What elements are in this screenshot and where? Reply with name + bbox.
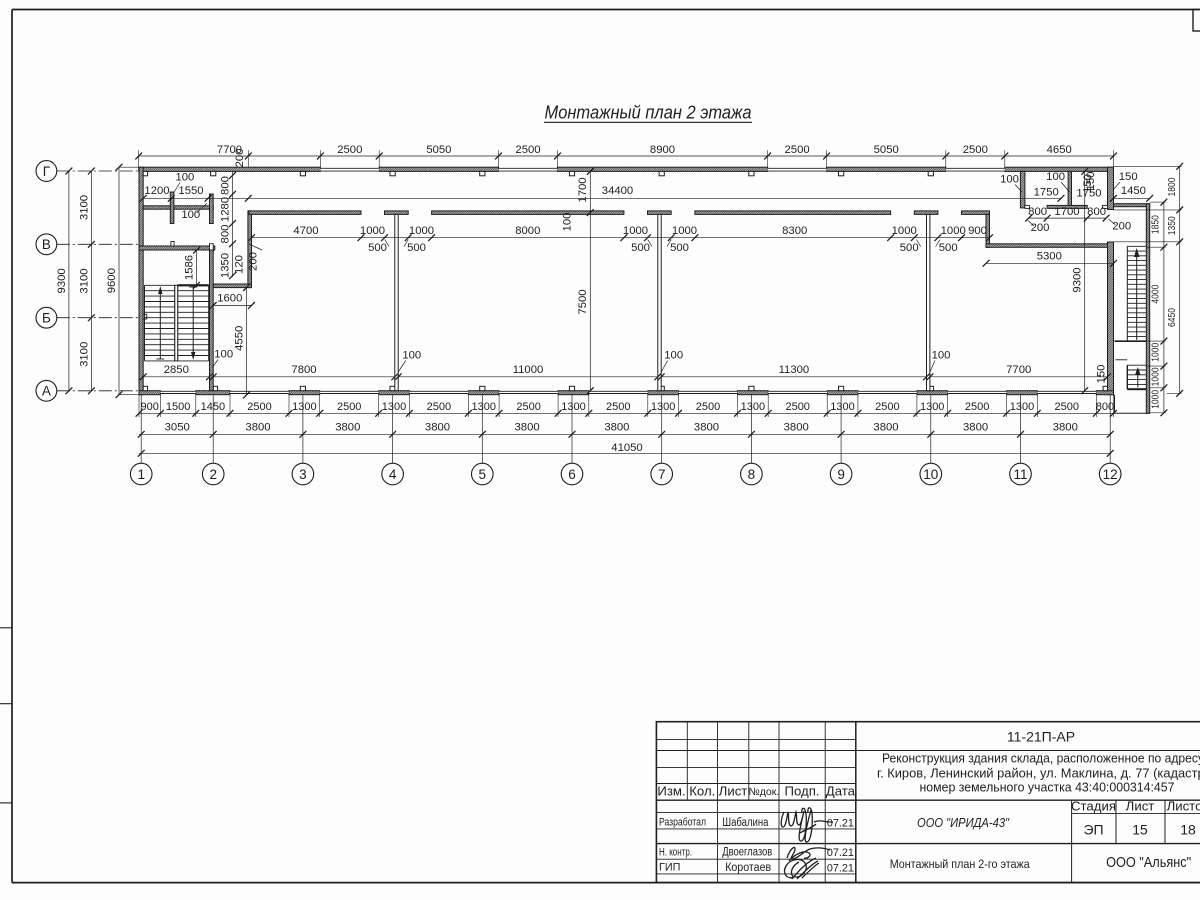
svg-text:3100: 3100 [78, 195, 90, 220]
svg-text:5300: 5300 [1037, 250, 1062, 262]
svg-text:ООО "Альянс": ООО "Альянс" [1106, 855, 1191, 871]
svg-text:3: 3 [299, 467, 307, 482]
svg-text:4000: 4000 [1150, 284, 1161, 303]
svg-text:7800: 7800 [291, 364, 316, 376]
svg-text:Б: Б [42, 311, 51, 326]
svg-text:Лист: Лист [1126, 798, 1155, 813]
svg-text:1300: 1300 [382, 401, 406, 413]
svg-text:200: 200 [1031, 222, 1050, 234]
svg-text:1000: 1000 [1150, 343, 1161, 362]
svg-text:5050: 5050 [874, 144, 899, 156]
svg-text:500: 500 [407, 242, 426, 254]
svg-text:800: 800 [220, 176, 232, 195]
svg-text:1300: 1300 [651, 401, 675, 413]
svg-text:8: 8 [748, 467, 756, 482]
svg-text:1300: 1300 [1010, 401, 1034, 413]
svg-text:8000: 8000 [515, 225, 540, 237]
svg-text:1000: 1000 [1150, 390, 1161, 409]
svg-text:1300: 1300 [741, 401, 765, 413]
svg-text:ЭП: ЭП [1083, 822, 1103, 838]
svg-text:Монтажный план 2 этажа: Монтажный план 2 этажа [545, 103, 752, 123]
svg-text:500: 500 [368, 242, 387, 254]
svg-text:10: 10 [923, 467, 938, 482]
svg-text:Г: Г [43, 164, 51, 179]
svg-text:3100: 3100 [78, 342, 90, 367]
svg-text:8900: 8900 [650, 144, 675, 156]
svg-text:1550: 1550 [178, 185, 203, 197]
svg-text:1200: 1200 [144, 185, 169, 197]
svg-text:34400: 34400 [602, 185, 633, 197]
svg-text:4650: 4650 [1047, 144, 1072, 156]
svg-text:15: 15 [1132, 822, 1148, 838]
svg-text:500: 500 [939, 242, 958, 254]
svg-text:500: 500 [670, 242, 689, 254]
svg-text:9300: 9300 [56, 268, 68, 293]
svg-text:1000: 1000 [360, 225, 385, 237]
svg-text:2500: 2500 [965, 401, 989, 413]
svg-text:150: 150 [1119, 171, 1138, 183]
svg-text:8300: 8300 [782, 225, 807, 237]
svg-text:800: 800 [1096, 401, 1114, 413]
svg-text:900: 900 [968, 225, 987, 237]
svg-text:07.21: 07.21 [827, 847, 854, 859]
svg-text:3800: 3800 [245, 421, 270, 433]
svg-text:1300: 1300 [561, 401, 585, 413]
svg-text:800: 800 [220, 225, 232, 244]
svg-text:100: 100 [562, 213, 574, 232]
svg-text:4550: 4550 [233, 326, 245, 351]
svg-text:4: 4 [389, 467, 397, 482]
svg-text:1000: 1000 [941, 225, 966, 237]
svg-text:9: 9 [837, 467, 845, 482]
svg-text:Дата: Дата [826, 784, 856, 799]
svg-text:ООО "ИРИДА-43": ООО "ИРИДА-43" [917, 815, 1010, 830]
svg-text:2850: 2850 [164, 364, 189, 376]
svg-text:1850: 1850 [1150, 215, 1161, 234]
svg-text:1: 1 [137, 467, 145, 482]
svg-text:1300: 1300 [830, 401, 854, 413]
svg-text:200: 200 [1112, 220, 1131, 232]
svg-text:3050: 3050 [165, 421, 190, 433]
svg-text:500: 500 [900, 242, 919, 254]
svg-text:3800: 3800 [694, 421, 719, 433]
svg-text:200: 200 [234, 149, 246, 168]
svg-text:18: 18 [1180, 822, 1196, 838]
svg-text:2500: 2500 [606, 401, 630, 413]
svg-text:3800: 3800 [1053, 421, 1078, 433]
svg-text:2500: 2500 [785, 401, 809, 413]
svg-text:11300: 11300 [779, 364, 810, 376]
svg-text:Реконструкция здания склада, р: Реконструкция здания склада, расположенн… [882, 751, 1200, 766]
svg-text:100: 100 [932, 350, 951, 362]
svg-text:9300: 9300 [1072, 267, 1084, 292]
svg-text:2500: 2500 [247, 401, 271, 413]
svg-text:500: 500 [631, 242, 650, 254]
svg-text:800: 800 [1028, 206, 1047, 218]
svg-text:Н. контр.: Н. контр. [659, 846, 692, 858]
svg-text:1750: 1750 [1034, 187, 1059, 199]
svg-text:5: 5 [479, 467, 487, 482]
svg-text:12: 12 [1103, 467, 1118, 482]
svg-text:9600: 9600 [106, 268, 118, 293]
svg-text:2500: 2500 [427, 401, 451, 413]
svg-text:3800: 3800 [335, 421, 360, 433]
svg-text:1450: 1450 [1121, 185, 1146, 197]
svg-text:2500: 2500 [337, 144, 362, 156]
svg-text:100: 100 [1000, 174, 1019, 186]
svg-text:Монтажный план 2-го этажа: Монтажный план 2-го этажа [890, 857, 1030, 871]
svg-text:2500: 2500 [515, 144, 540, 156]
svg-text:Листов: Листов [1167, 798, 1200, 813]
svg-text:2500: 2500 [785, 144, 810, 156]
svg-text:150: 150 [1085, 172, 1097, 191]
svg-text:3800: 3800 [784, 421, 809, 433]
svg-text:1300: 1300 [292, 401, 316, 413]
svg-text:3100: 3100 [78, 268, 90, 293]
svg-text:ГИП: ГИП [659, 861, 680, 873]
svg-text:11000: 11000 [513, 364, 544, 376]
svg-text:1280: 1280 [220, 197, 232, 222]
svg-text:11-21П-АР: 11-21П-АР [1007, 729, 1075, 745]
svg-text:3800: 3800 [425, 421, 450, 433]
svg-text:2: 2 [209, 467, 217, 482]
svg-text:1350: 1350 [220, 253, 232, 278]
svg-text:В: В [42, 237, 51, 252]
svg-text:1450: 1450 [201, 401, 225, 413]
svg-text:3800: 3800 [515, 421, 540, 433]
svg-text:100: 100 [181, 209, 200, 221]
svg-text:2500: 2500 [516, 401, 540, 413]
svg-text:1586: 1586 [183, 255, 195, 280]
svg-text:5050: 5050 [426, 144, 451, 156]
svg-text:1800: 1800 [1167, 177, 1178, 196]
svg-text:2500: 2500 [963, 144, 988, 156]
svg-text:100: 100 [214, 349, 233, 361]
svg-text:7500: 7500 [577, 289, 589, 314]
svg-text:07.21: 07.21 [827, 817, 854, 829]
svg-text:3800: 3800 [873, 421, 898, 433]
svg-text:200: 200 [248, 252, 260, 271]
svg-text:1000: 1000 [892, 225, 917, 237]
svg-text:100: 100 [664, 350, 683, 362]
svg-text:2500: 2500 [875, 401, 899, 413]
svg-text:41050: 41050 [611, 442, 642, 454]
svg-text:1500: 1500 [166, 401, 190, 413]
svg-text:Кол.: Кол. [689, 784, 715, 799]
svg-text:Коротаев: Коротаев [725, 862, 771, 874]
svg-text:Стадия: Стадия [1071, 798, 1116, 813]
svg-text:2500: 2500 [337, 401, 361, 413]
svg-text:7: 7 [658, 467, 666, 482]
svg-text:1600: 1600 [217, 292, 242, 304]
svg-text:1000: 1000 [409, 225, 434, 237]
svg-text:800: 800 [1087, 206, 1106, 218]
svg-text:7700: 7700 [1006, 364, 1031, 376]
svg-text:3800: 3800 [963, 421, 988, 433]
svg-text:100: 100 [1046, 171, 1065, 183]
svg-text:1700: 1700 [1054, 206, 1079, 218]
svg-text:1000: 1000 [672, 225, 697, 237]
svg-text:№док.: №док. [749, 786, 780, 798]
svg-text:1000: 1000 [1150, 367, 1161, 386]
svg-text:100: 100 [402, 350, 421, 362]
svg-text:07.21: 07.21 [827, 862, 854, 874]
svg-text:1700: 1700 [577, 177, 589, 202]
svg-text:2500: 2500 [696, 401, 720, 413]
svg-text:Лист: Лист [719, 784, 748, 799]
svg-text:120: 120 [234, 255, 246, 274]
svg-text:6: 6 [568, 467, 576, 482]
svg-text:1300: 1300 [920, 401, 944, 413]
svg-text:г. Киров, Ленинский район, ул.: г. Киров, Ленинский район, ул. Маклина, … [877, 766, 1200, 781]
svg-text:Подп.: Подп. [784, 784, 819, 799]
svg-text:1350: 1350 [1167, 216, 1178, 235]
svg-text:Разработал: Разработал [659, 817, 706, 829]
svg-text:3800: 3800 [604, 421, 629, 433]
svg-text:4700: 4700 [293, 225, 318, 237]
svg-text:Двоеглазов: Двоеглазов [722, 847, 772, 859]
svg-text:1000: 1000 [623, 225, 648, 237]
svg-text:100: 100 [175, 172, 194, 184]
svg-text:Изм.: Изм. [657, 784, 685, 799]
svg-text:1300: 1300 [472, 401, 496, 413]
svg-text:Шабалина: Шабалина [722, 817, 768, 829]
svg-text:2500: 2500 [1055, 401, 1079, 413]
svg-text:А: А [42, 384, 51, 399]
svg-text:11: 11 [1013, 467, 1027, 482]
svg-text:900: 900 [141, 401, 159, 413]
svg-text:150: 150 [1096, 365, 1108, 384]
svg-text:номер земельного участка 43:40: номер земельного участка 43:40:000314:45… [920, 779, 1175, 794]
svg-text:6450: 6450 [1167, 308, 1178, 327]
